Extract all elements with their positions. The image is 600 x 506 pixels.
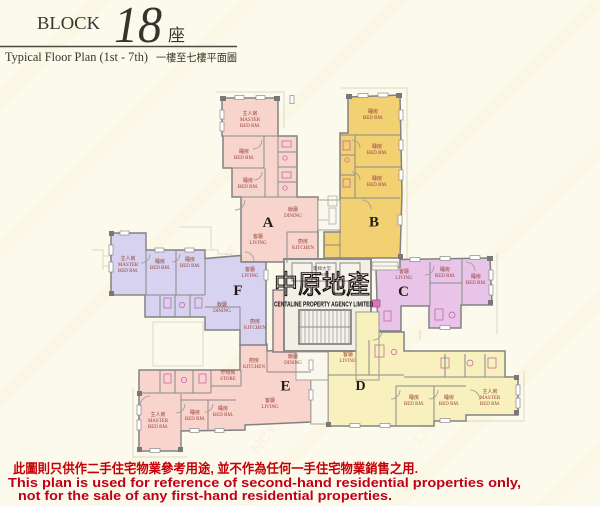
svg-text:睡房: 睡房 bbox=[471, 273, 481, 280]
svg-text:飯廳: 飯廳 bbox=[288, 353, 298, 360]
svg-text:BLOCK: BLOCK bbox=[37, 13, 100, 33]
svg-text:C: C bbox=[398, 284, 409, 300]
svg-text:睡房: 睡房 bbox=[409, 394, 419, 401]
svg-text:BED RM.: BED RM. bbox=[367, 151, 387, 156]
svg-text:MASTER: MASTER bbox=[480, 396, 501, 401]
svg-text:DINING: DINING bbox=[284, 361, 302, 366]
svg-text:廚房: 廚房 bbox=[298, 238, 308, 245]
svg-text:not for the sale of any first-: not for the sale of any first-hand resid… bbox=[18, 488, 392, 503]
svg-text:主人房: 主人房 bbox=[482, 388, 497, 395]
svg-text:貯物房: 貯物房 bbox=[220, 369, 235, 376]
svg-text:睡房: 睡房 bbox=[368, 108, 378, 115]
svg-text:BED RM.: BED RM. bbox=[148, 425, 168, 430]
svg-text:BED RM.: BED RM. bbox=[404, 402, 424, 407]
svg-text:客廳: 客廳 bbox=[245, 266, 255, 273]
svg-text:BED RM.: BED RM. bbox=[439, 402, 459, 407]
svg-text:MASTER: MASTER bbox=[240, 118, 261, 123]
svg-text:BED RM.: BED RM. bbox=[213, 413, 233, 418]
svg-text:LIVING: LIVING bbox=[261, 405, 279, 410]
svg-text:B: B bbox=[369, 215, 379, 231]
svg-text:BED RM.: BED RM. bbox=[238, 185, 258, 190]
svg-text:睡房: 睡房 bbox=[372, 175, 382, 182]
svg-text:睡房: 睡房 bbox=[243, 177, 253, 184]
svg-text:LIVING: LIVING bbox=[395, 276, 413, 281]
svg-text:KITCHEN: KITCHEN bbox=[243, 365, 265, 370]
svg-text:E: E bbox=[280, 379, 290, 395]
svg-text:睡房: 睡房 bbox=[185, 256, 195, 263]
svg-text:睡房: 睡房 bbox=[218, 405, 228, 412]
svg-text:KITCHEN: KITCHEN bbox=[292, 246, 314, 251]
svg-text:睡房: 睡房 bbox=[372, 143, 382, 150]
svg-text:D: D bbox=[355, 379, 365, 394]
svg-text:飯廳: 飯廳 bbox=[288, 206, 298, 213]
svg-text:廚房: 廚房 bbox=[249, 357, 259, 364]
svg-text:BED RM.: BED RM. bbox=[240, 124, 260, 129]
svg-text:座: 座 bbox=[168, 26, 185, 45]
svg-text:LIVING: LIVING bbox=[339, 359, 357, 364]
svg-text:BED RM.: BED RM. bbox=[234, 156, 254, 161]
svg-text:LIVING: LIVING bbox=[249, 241, 267, 246]
svg-text:BED RM.: BED RM. bbox=[367, 183, 387, 188]
svg-text:客廳: 客廳 bbox=[399, 268, 409, 275]
svg-text:此圖則只供作二手住宅物業參考用途, 並不作為任何一手住宅物業: 此圖則只供作二手住宅物業參考用途, 並不作為任何一手住宅物業銷售之用. bbox=[13, 461, 418, 476]
svg-text:Typical Floor Plan (1st - 7th): Typical Floor Plan (1st - 7th) bbox=[5, 50, 148, 64]
svg-text:CENTALINE PROPERTY AGENCY LIMI: CENTALINE PROPERTY AGENCY LIMITED bbox=[274, 300, 373, 309]
svg-text:廚房: 廚房 bbox=[250, 318, 260, 325]
svg-text:主人房: 主人房 bbox=[242, 110, 257, 117]
svg-text:主人房: 主人房 bbox=[150, 411, 165, 418]
svg-text:BED RM.: BED RM. bbox=[180, 264, 200, 269]
svg-text:BED RM.: BED RM. bbox=[118, 269, 138, 274]
svg-text:BED RM.: BED RM. bbox=[480, 402, 500, 407]
svg-text:客廳: 客廳 bbox=[253, 233, 263, 240]
svg-text:BED RM.: BED RM. bbox=[185, 417, 205, 422]
svg-text:睡房: 睡房 bbox=[444, 394, 454, 401]
svg-text:睡房: 睡房 bbox=[190, 409, 200, 416]
svg-text:客廳: 客廳 bbox=[343, 351, 353, 358]
svg-text:睡房: 睡房 bbox=[155, 258, 165, 265]
svg-text:MASTER: MASTER bbox=[118, 263, 139, 268]
svg-text:F: F bbox=[233, 283, 242, 299]
svg-text:飯廳: 飯廳 bbox=[217, 301, 227, 308]
svg-text:中原地產: 中原地產 bbox=[274, 270, 370, 300]
svg-text:A: A bbox=[263, 215, 274, 231]
svg-text:LIVING: LIVING bbox=[241, 274, 259, 279]
svg-text:客廳: 客廳 bbox=[265, 397, 275, 404]
svg-text:STORE: STORE bbox=[220, 377, 236, 382]
svg-text:主人房: 主人房 bbox=[120, 255, 135, 262]
svg-text:BED RM.: BED RM. bbox=[466, 281, 486, 286]
svg-text:BED RM.: BED RM. bbox=[435, 274, 455, 279]
svg-text:MASTER: MASTER bbox=[148, 419, 169, 424]
svg-text:KITCHEN: KITCHEN bbox=[244, 326, 266, 331]
svg-text:BED RM.: BED RM. bbox=[150, 266, 170, 271]
svg-text:一樓至七樓平面圖: 一樓至七樓平面圖 bbox=[156, 51, 237, 64]
svg-text:BED RM.: BED RM. bbox=[363, 116, 383, 121]
svg-text:睡房: 睡房 bbox=[440, 266, 450, 273]
svg-text:DINING: DINING bbox=[284, 214, 302, 219]
svg-text:睡房: 睡房 bbox=[239, 148, 249, 155]
svg-text:DINING: DINING bbox=[213, 309, 231, 314]
